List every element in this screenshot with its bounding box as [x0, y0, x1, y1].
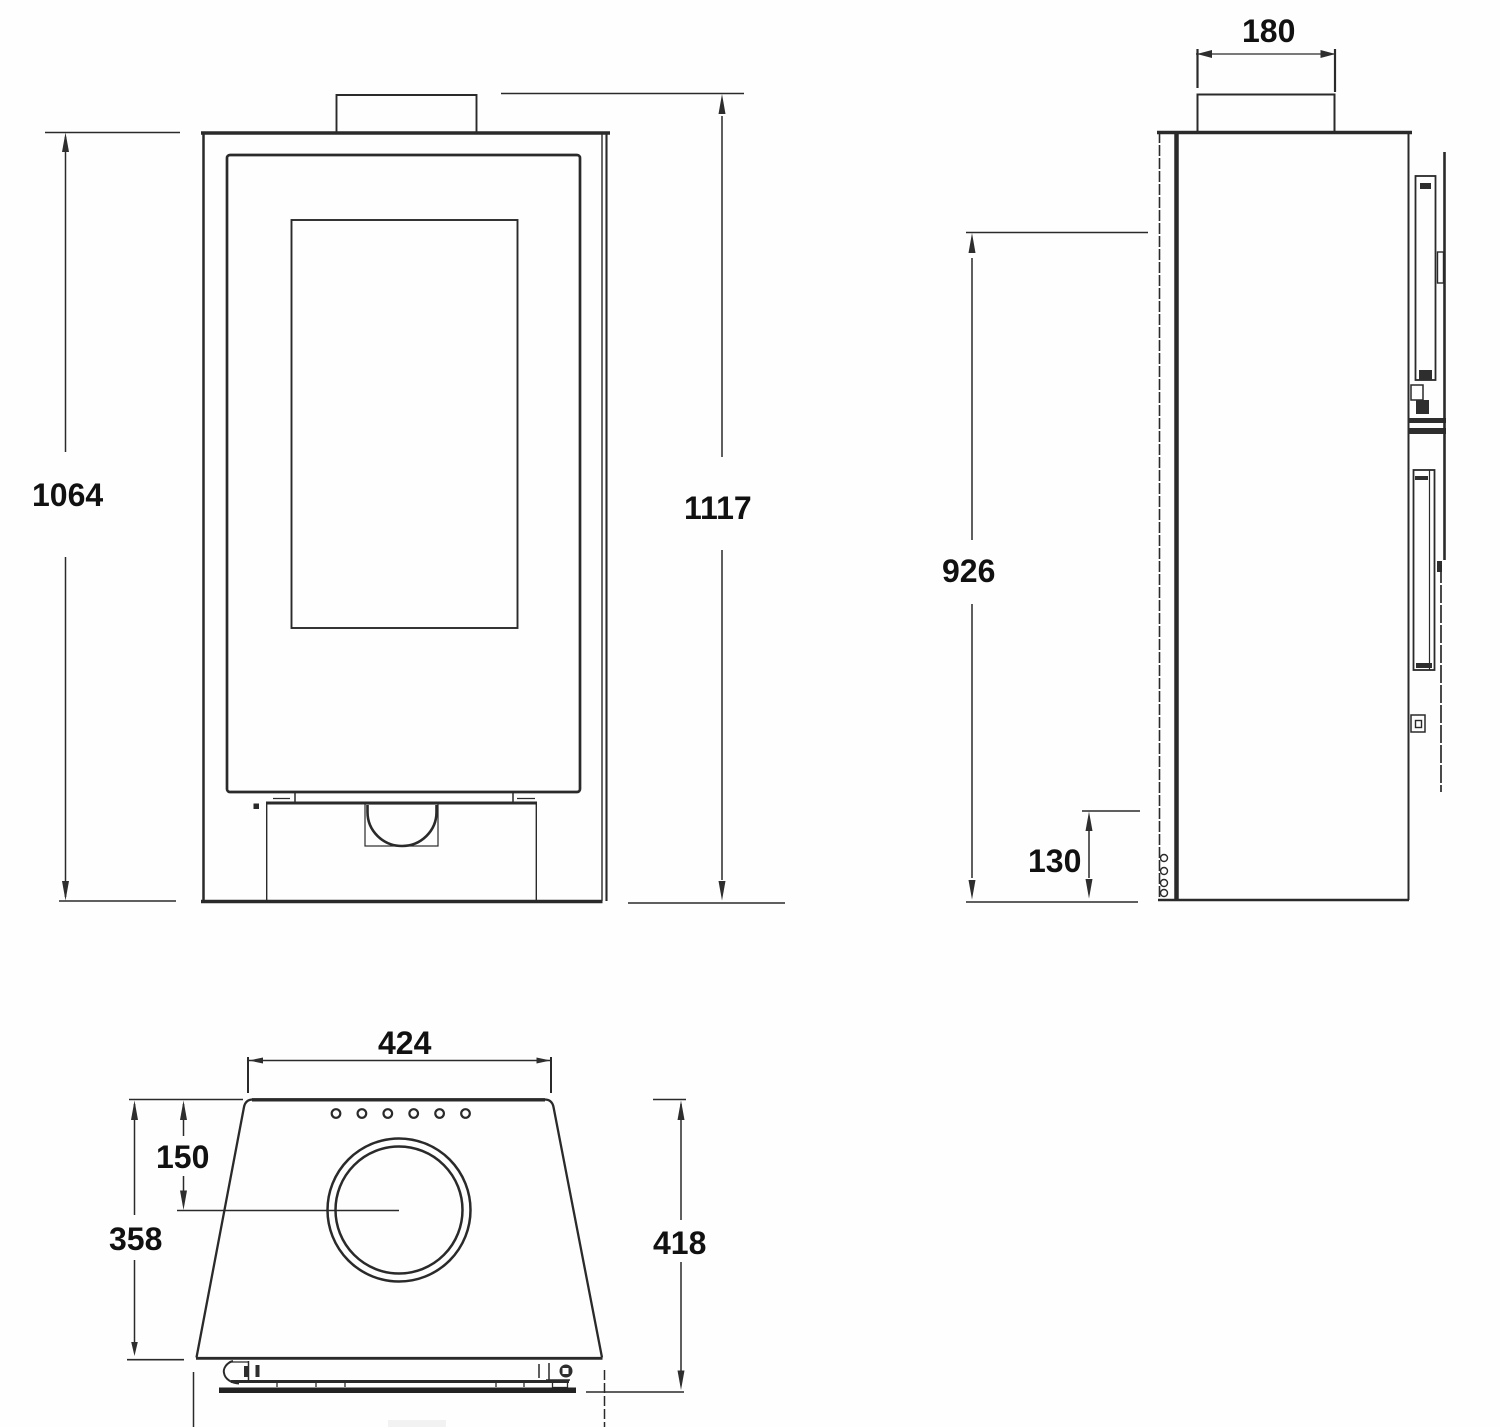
- svg-text:358: 358: [109, 1221, 162, 1257]
- svg-text:150: 150: [156, 1139, 209, 1175]
- svg-text:1117: 1117: [684, 490, 752, 526]
- svg-text:926: 926: [942, 553, 995, 589]
- svg-text:180: 180: [1242, 13, 1295, 49]
- svg-text:418: 418: [653, 1225, 706, 1261]
- svg-text:424: 424: [378, 1025, 432, 1061]
- svg-text:130: 130: [1028, 843, 1081, 879]
- svg-text:1064: 1064: [32, 477, 103, 513]
